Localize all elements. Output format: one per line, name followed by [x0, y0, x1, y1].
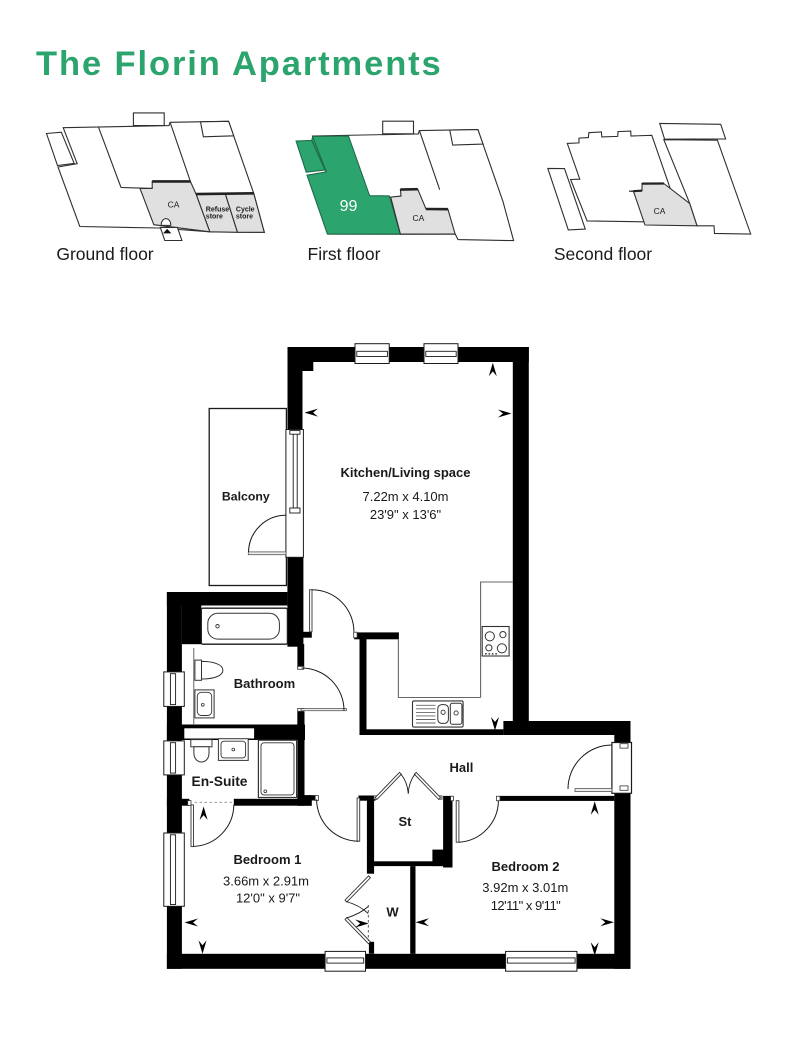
svg-text:En-Suite: En-Suite — [192, 774, 248, 789]
svg-text:99: 99 — [340, 198, 358, 215]
svg-text:Bedroom 2: Bedroom 2 — [492, 859, 560, 874]
svg-text:Hall: Hall — [449, 760, 473, 775]
svg-text:Second floor: Second floor — [554, 244, 652, 264]
svg-text:Bathroom: Bathroom — [234, 676, 295, 691]
svg-text:12'11" x 9'11": 12'11" x 9'11" — [491, 898, 561, 913]
svg-text:W: W — [386, 905, 399, 920]
svg-text:3.66m x 2.91m: 3.66m x 2.91m — [223, 873, 309, 888]
svg-text:CA: CA — [168, 200, 180, 210]
svg-text:Cycle: Cycle — [236, 206, 255, 213]
svg-text:23'9" x 13'6": 23'9" x 13'6" — [370, 507, 442, 522]
svg-text:St: St — [399, 814, 413, 829]
svg-text:Refuse: Refuse — [206, 206, 229, 213]
svg-text:The Florin Apartments: The Florin Apartments — [36, 45, 443, 83]
svg-text:Balcony: Balcony — [222, 490, 270, 504]
svg-text:CA: CA — [654, 206, 666, 216]
svg-text:7.22m x 4.10m: 7.22m x 4.10m — [363, 489, 449, 504]
svg-text:First floor: First floor — [308, 244, 381, 264]
svg-text:3.92m x 3.01m: 3.92m x 3.01m — [482, 880, 568, 895]
svg-text:store: store — [236, 213, 253, 220]
svg-text:Ground floor: Ground floor — [56, 244, 153, 264]
svg-text:CA: CA — [412, 213, 424, 223]
svg-text:Kitchen/Living space: Kitchen/Living space — [340, 465, 470, 480]
svg-text:store: store — [206, 213, 223, 220]
svg-text:12'0" x 9'7": 12'0" x 9'7" — [236, 891, 300, 906]
svg-text:Bedroom 1: Bedroom 1 — [233, 852, 301, 867]
